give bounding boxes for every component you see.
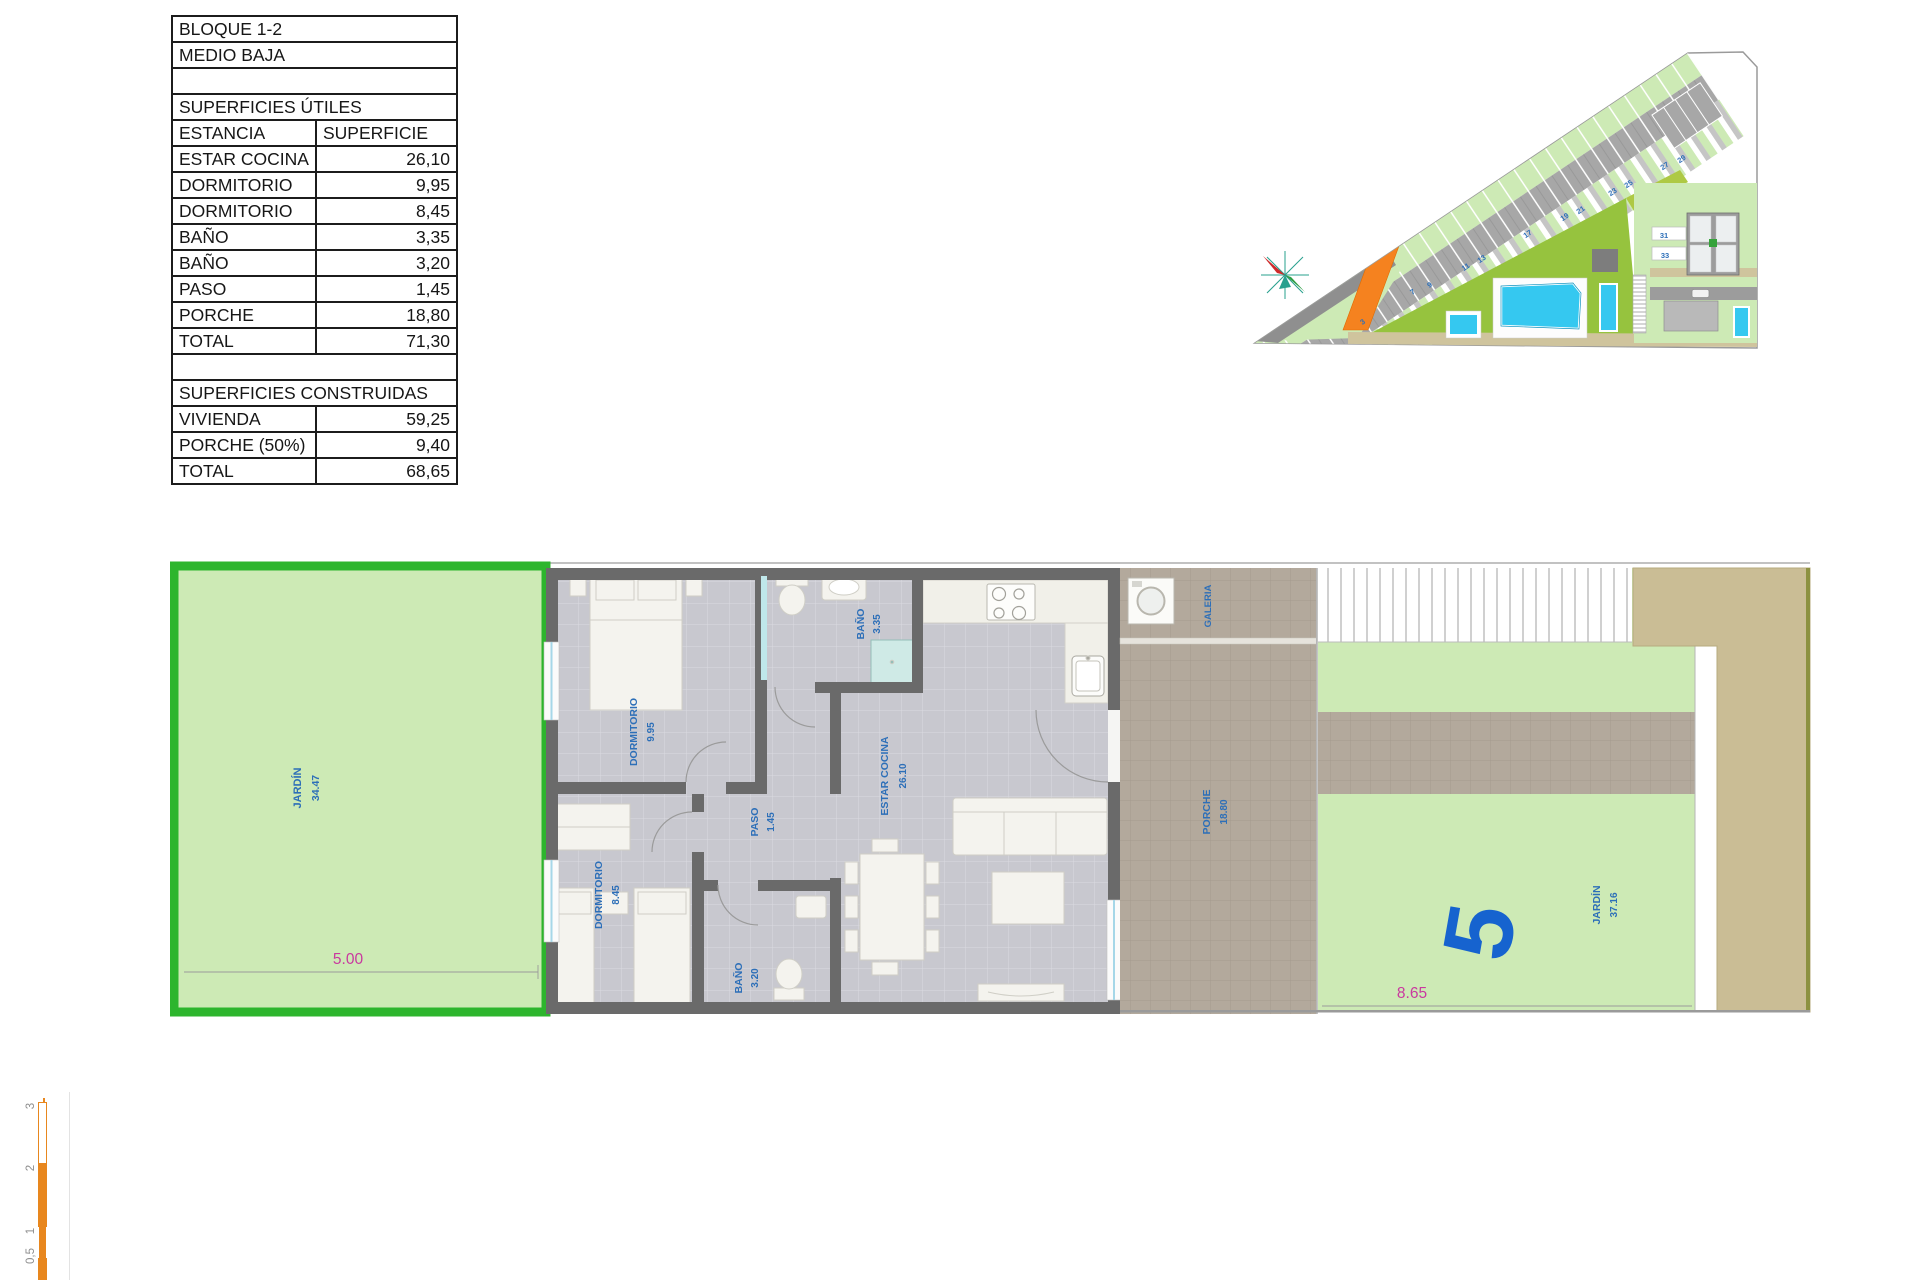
- scale-segment: [38, 1258, 47, 1280]
- plot-number: 31: [1660, 231, 1668, 240]
- pool-lap: [1600, 284, 1617, 331]
- table-row: BAÑO3,35: [173, 223, 456, 249]
- wall-right: [1108, 568, 1120, 710]
- boundary-line-top: [546, 562, 1810, 564]
- chair: [926, 862, 939, 884]
- row-label: TOTAL: [173, 329, 315, 353]
- washbasin-bowl: [829, 579, 859, 595]
- wall-bath1-bottom: [815, 682, 915, 693]
- row-label: SUPERFICIES ÚTILES: [173, 95, 456, 119]
- page-edge-line: [69, 1092, 70, 1280]
- wall-bed1-bottom: [546, 782, 686, 794]
- washing-machine-drum: [1138, 588, 1165, 615]
- row-value: 68,65: [315, 459, 456, 483]
- washing-machine-panel: [1132, 581, 1142, 587]
- scale-label: 0,5: [25, 1245, 37, 1267]
- row-label: PASO: [173, 277, 315, 301]
- wall-bath2-top: [704, 880, 718, 891]
- block-unit: [1690, 216, 1711, 242]
- label-galeria: GALERIA: [1203, 584, 1214, 627]
- table-row-empty: [173, 353, 456, 379]
- row-label: TOTAL: [173, 459, 315, 483]
- wall-bed2-right: [692, 794, 704, 812]
- garden-right: 8.65 5 JARDÍN 37.16: [1318, 568, 1810, 1012]
- area-bano1: 3.35: [872, 614, 883, 634]
- toilet-tank: [774, 988, 804, 1000]
- scale-label: 3: [25, 1095, 37, 1117]
- row-value: 71,30: [315, 329, 456, 353]
- glazed-partition: [761, 576, 767, 680]
- wall-living-left: [830, 878, 841, 1002]
- table-row: BAÑO3,20: [173, 249, 456, 275]
- table-section-header: SUPERFICIES ÚTILES: [173, 93, 456, 119]
- wall-bath1-right: [912, 568, 923, 693]
- plot-edge-line: [1806, 568, 1810, 1012]
- row-value: 3,35: [315, 225, 456, 249]
- pool-main: [1501, 283, 1581, 329]
- row-value: 3,20: [315, 251, 456, 275]
- garden-right-label: JARDÍN: [1590, 885, 1603, 924]
- dining-table: [860, 854, 924, 960]
- row-value: 9,95: [315, 173, 456, 197]
- pillow: [555, 892, 591, 914]
- paved-path-band: [1318, 712, 1695, 794]
- boundary-line-bottom: [1120, 1010, 1810, 1013]
- area-bano2: 3.20: [750, 968, 761, 988]
- table-column-header-row: ESTANCIASUPERFICIE: [173, 119, 456, 145]
- row-label: DORMITORIO: [173, 199, 315, 223]
- scale-bar: 3 2 1 0,5: [26, 1098, 60, 1280]
- label-bano1: BAÑO: [854, 609, 867, 640]
- toilet-bowl: [776, 959, 802, 989]
- block-unit: [1716, 245, 1736, 272]
- area-porche: 18.80: [1219, 799, 1230, 824]
- block-stair-core: [1709, 239, 1717, 247]
- plot-strip-31: [1652, 227, 1686, 240]
- table-row: ESTAR COCINA26,10: [173, 145, 456, 171]
- table-row-total: TOTAL68,65: [173, 457, 456, 483]
- block-unit: [1690, 245, 1711, 272]
- row-label: DORMITORIO: [173, 173, 315, 197]
- fence-strip: [1633, 275, 1646, 333]
- coffee-table: [992, 872, 1064, 924]
- scale-segment: [39, 1227, 46, 1258]
- sofa: [953, 798, 1107, 855]
- table-section-header: SUPERFICIES CONSTRUIDAS: [173, 379, 456, 405]
- row-label: ESTAR COCINA: [173, 147, 315, 171]
- wall-bath2-top: [758, 880, 830, 891]
- label-estar-cocina: ESTAR COCINA: [879, 736, 891, 816]
- surfaces-table: BLOQUE 1-2 MEDIO BAJA SUPERFICIES ÚTILES…: [171, 15, 458, 485]
- area-estar-cocina: 26.10: [898, 763, 909, 788]
- washbasin: [796, 896, 826, 918]
- label-bano2: BAÑO: [732, 963, 745, 994]
- row-value: 9,40: [315, 433, 456, 457]
- parking-area: [1664, 301, 1718, 331]
- table-row: PASO1,45: [173, 275, 456, 301]
- scale-label: 1: [25, 1220, 37, 1242]
- area-dormitorio2: 8.45: [611, 885, 622, 905]
- scale-segment: [38, 1164, 47, 1227]
- row-label: [173, 355, 456, 379]
- scale-segment: [38, 1102, 47, 1164]
- row-label: BAÑO: [173, 225, 315, 249]
- toilet-bowl: [779, 585, 805, 615]
- garden-left: JARDÍN 34.47 5.00: [174, 566, 546, 1012]
- area-dormitorio1: 9.95: [646, 722, 657, 742]
- table-row: DORMITORIO9,95: [173, 171, 456, 197]
- wall-living-left: [830, 693, 841, 794]
- row-value: 8,45: [315, 199, 456, 223]
- entrance-threshold: [1108, 710, 1120, 782]
- shower-drain: [890, 660, 894, 664]
- chair: [926, 930, 939, 952]
- table-row: PORCHE18,80: [173, 301, 456, 327]
- row-label: VIVIENDA: [173, 407, 315, 431]
- chair: [845, 930, 858, 952]
- porch: [1120, 568, 1318, 1014]
- side-path: [1695, 646, 1717, 1012]
- galeria-divider: [1120, 638, 1317, 644]
- label-paso: PASO: [749, 808, 761, 837]
- chair: [845, 896, 858, 918]
- pool-small: [1449, 314, 1478, 335]
- wall-right: [1108, 1000, 1120, 1014]
- wall-bed1-bottom: [726, 782, 767, 794]
- chair: [926, 896, 939, 918]
- floor-plan: JARDÍN 34.47 5.00: [170, 560, 1820, 1025]
- faucet: [1086, 656, 1090, 660]
- plot-number: 33: [1661, 251, 1669, 260]
- row-value: 1,45: [315, 277, 456, 301]
- block-unit: [1716, 216, 1736, 242]
- area-paso: 1.45: [766, 812, 777, 832]
- table-row: VIVIENDA59,25: [173, 405, 456, 431]
- chair: [872, 839, 898, 852]
- row-value: 18,80: [315, 303, 456, 327]
- row-value: 59,25: [315, 407, 456, 431]
- label-dormitorio2: DORMITORIO: [593, 861, 605, 929]
- wall-top: [546, 568, 1120, 580]
- table-row-empty: [173, 67, 456, 93]
- site-key-plan: 3 7 9 11 13 17 19 21 23 25 27 29 31 33: [1240, 35, 1810, 360]
- table-row: PORCHE (50%)9,40: [173, 431, 456, 457]
- row-label: PORCHE: [173, 303, 315, 327]
- garden-right-area: 37.16: [1609, 892, 1620, 917]
- pillow: [638, 892, 686, 914]
- table-row-total: TOTAL71,30: [173, 327, 456, 353]
- pool-small-right: [1734, 307, 1749, 337]
- row-label: BLOQUE 1-2: [173, 17, 456, 41]
- table-row: BLOQUE 1-2: [173, 17, 456, 41]
- garden-left-label: JARDÍN: [291, 767, 304, 808]
- porch-right-edge: [1316, 568, 1318, 1014]
- label-porche: PORCHE: [1201, 790, 1213, 835]
- pool-pavilion: [1592, 249, 1618, 272]
- row-label: ESTANCIA: [173, 121, 315, 145]
- wall-left: [546, 568, 558, 642]
- dim-left-value: 5.00: [333, 951, 364, 968]
- wall-right: [1108, 782, 1120, 900]
- row-label: BAÑO: [173, 251, 315, 275]
- row-label: PORCHE (50%): [173, 433, 315, 457]
- kitchen-sink-basin: [1076, 661, 1100, 691]
- car-icon: [1692, 290, 1709, 298]
- wall-bottom: [546, 1002, 1120, 1014]
- garden-left-area: 34.47: [310, 775, 322, 801]
- scale-label: 2: [25, 1157, 37, 1179]
- compass-icon: [1261, 251, 1309, 299]
- row-label: MEDIO BAJA: [173, 43, 456, 67]
- chair: [872, 962, 898, 975]
- plan-sheet: { "info_table": { "rows": [ {"label": "B…: [0, 0, 1920, 1280]
- pillow: [596, 580, 634, 600]
- dim-right-value: 8.65: [1397, 985, 1427, 1002]
- wall-left: [546, 942, 558, 1014]
- wall-bed2-right: [692, 852, 704, 1002]
- row-label: [173, 69, 456, 93]
- pergola-slats: [1318, 568, 1632, 642]
- row-label: SUPERFICIES CONSTRUIDAS: [173, 381, 456, 405]
- row-value: SUPERFICIE: [315, 121, 456, 145]
- chair: [845, 862, 858, 884]
- table-row: MEDIO BAJA: [173, 41, 456, 67]
- row-value: 26,10: [315, 147, 456, 171]
- table-row: DORMITORIO8,45: [173, 197, 456, 223]
- pillow: [638, 580, 676, 600]
- label-dormitorio1: DORMITORIO: [628, 698, 640, 766]
